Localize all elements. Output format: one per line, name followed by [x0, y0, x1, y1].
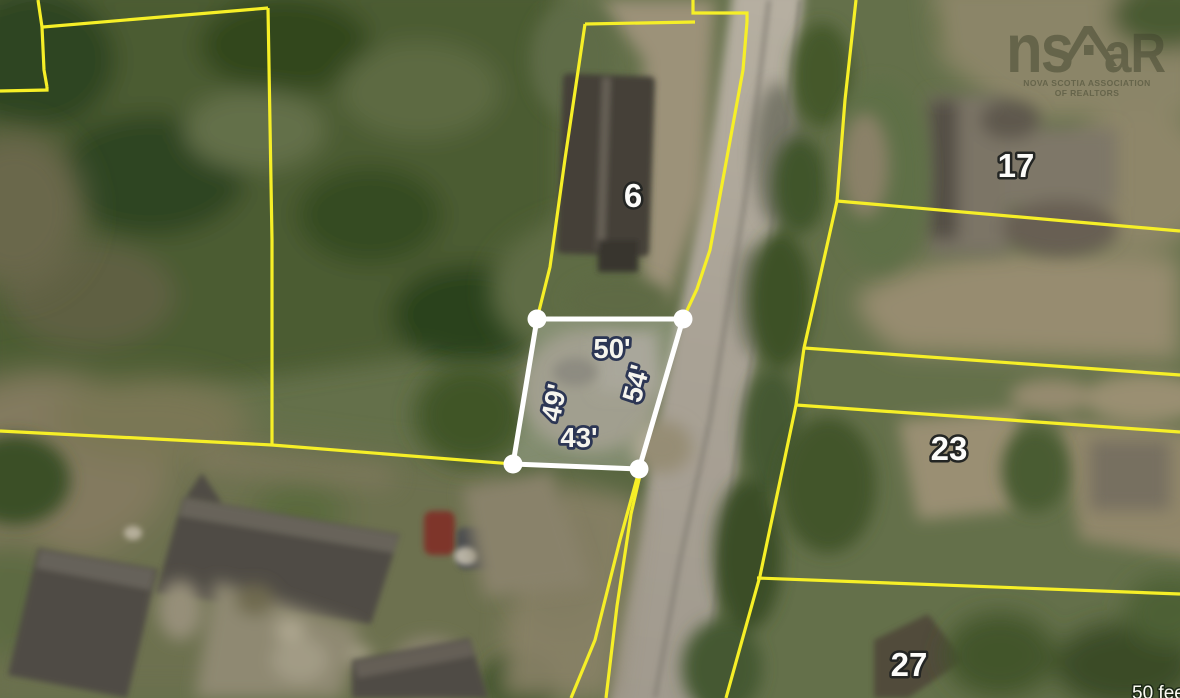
svg-text:ns: ns [1006, 9, 1072, 87]
svg-text:OF REALTORS: OF REALTORS [1055, 88, 1120, 98]
svg-text:17: 17 [998, 147, 1035, 184]
svg-text:NOVA SCOTIA ASSOCIATION: NOVA SCOTIA ASSOCIATION [1023, 78, 1150, 88]
svg-text:50 feet: 50 feet [1132, 683, 1180, 698]
svg-text:6: 6 [624, 177, 642, 214]
svg-text:43': 43' [560, 422, 597, 453]
svg-text:aR: aR [1104, 22, 1165, 85]
svg-text:50': 50' [593, 333, 630, 364]
svg-text:27: 27 [891, 646, 928, 683]
svg-text:23: 23 [931, 430, 968, 467]
